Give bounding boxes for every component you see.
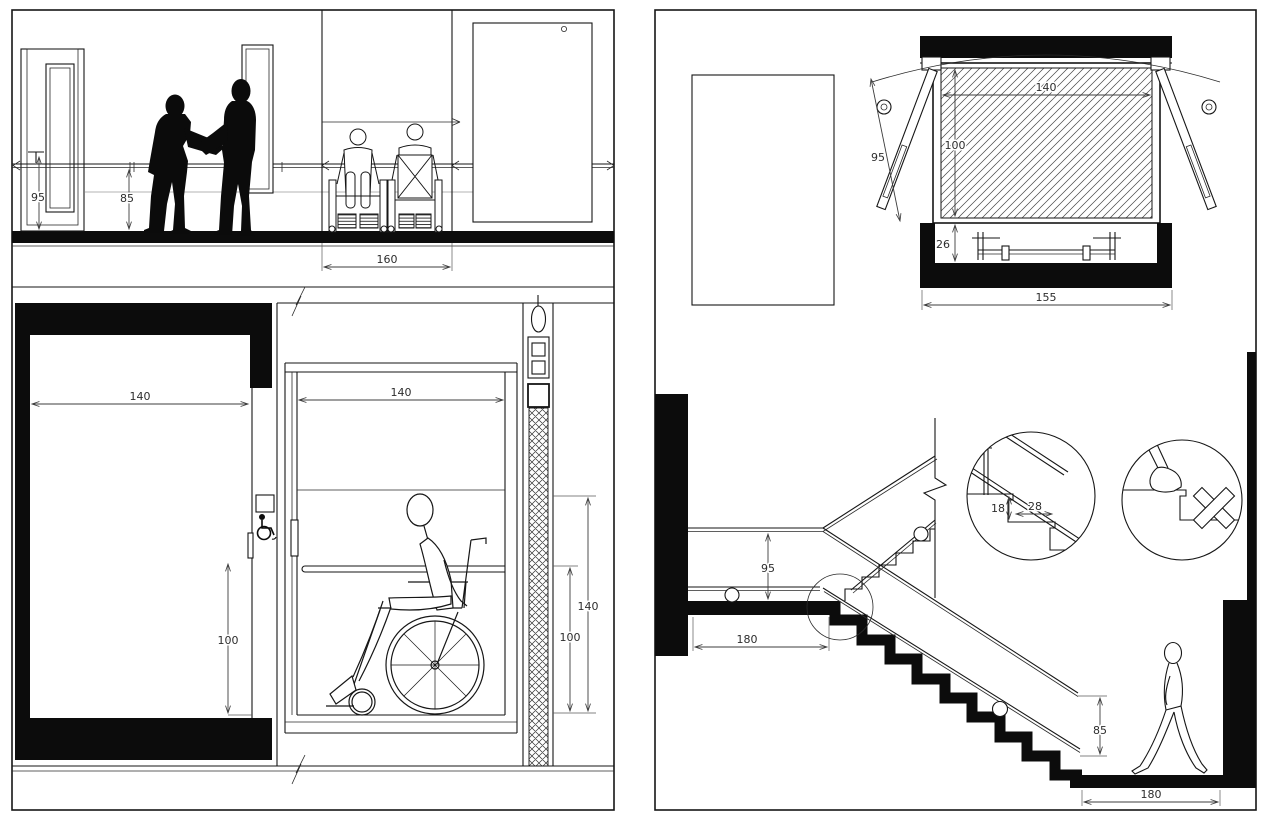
- dim-label-26: 26: [936, 238, 950, 251]
- door-pivot: [1202, 100, 1216, 114]
- dim-call-button-height: 100: [218, 564, 253, 715]
- lift-plan-sill: [920, 223, 1172, 288]
- stair-flight-steps: [835, 601, 1082, 775]
- dim-landing-handrail-height: 95: [761, 534, 775, 599]
- shoe-toe-catch: [1150, 467, 1181, 492]
- dim-label-140: 140: [130, 390, 151, 403]
- floor-slab: [12, 231, 614, 243]
- dim-label-85: 85: [1093, 724, 1107, 737]
- lift-shaft-right: [523, 295, 553, 766]
- walking-person-figure: [1132, 643, 1207, 775]
- dim-sill-clearance: 26: [936, 225, 955, 261]
- lift-plan-door-left: [877, 68, 937, 209]
- dim-label-155: 155: [1036, 291, 1057, 304]
- dim-label-100: 100: [560, 631, 581, 644]
- standing-person-left: [144, 114, 191, 235]
- shaft-insulation-hatch: [529, 408, 548, 766]
- cab-door-handle: [291, 520, 298, 556]
- door-pull: [248, 533, 253, 558]
- wrong-mark-x-icon: [1193, 487, 1234, 528]
- ball-marker: [914, 527, 928, 541]
- lift-call-button: [256, 495, 274, 512]
- upper-flight: [823, 418, 946, 601]
- dim-label-28: 28: [1028, 500, 1042, 513]
- break-symbol: [292, 287, 305, 316]
- break-symbol: [292, 755, 305, 784]
- standing-people-silhouettes: [144, 79, 256, 237]
- ball-marker: [725, 588, 739, 602]
- dim-riser-height: 18: [991, 497, 1009, 519]
- wheelchair-user-back: [388, 124, 442, 232]
- lower-landing-slab: [1070, 775, 1227, 788]
- wheelchair-user-front: [329, 129, 387, 232]
- dim-tread-depth: 28: [1016, 500, 1052, 514]
- lift-section-view: 140 100 140: [12, 287, 614, 784]
- dim-label-18: 18: [991, 502, 1005, 515]
- dim-lower-landing-length: 180: [1082, 788, 1220, 806]
- corridor-elevation-view: 95 85: [12, 10, 614, 271]
- step-detail-circle: 18 28: [961, 430, 1098, 560]
- dim-label-100: 100: [945, 139, 966, 152]
- door-pivot: [877, 100, 891, 114]
- corridor-door-panel-right: [473, 23, 592, 222]
- dim-label-160: 160: [377, 253, 398, 266]
- dim-handrail-height: 85: [120, 170, 134, 229]
- dim-label-180: 180: [737, 633, 758, 646]
- stair-section-view: 95 180 85 180 18: [655, 352, 1256, 806]
- lift-plan-view: 140 100 95 26 155: [692, 36, 1220, 310]
- dim-label-95: 95: [31, 191, 45, 204]
- upper-landing-slab: [673, 601, 836, 615]
- wrong-step-detail-circle: [1120, 440, 1242, 560]
- cab-handrail: [302, 566, 505, 572]
- dim-flight-handrail-height: 85: [1078, 696, 1107, 756]
- dim-label-140: 140: [1036, 81, 1057, 94]
- break-line: [924, 418, 946, 598]
- dim-cab-door-height: 140: [553, 496, 599, 713]
- drawing-sheet: 95 85: [0, 0, 1267, 827]
- guide-block: [528, 384, 549, 407]
- dim-cab-handrail-height: 100: [553, 566, 581, 711]
- dim-label-180: 180: [1141, 788, 1162, 801]
- dim-corridor-width: 160: [322, 243, 452, 271]
- wheelchair-accessibility-icon: [258, 515, 277, 540]
- dim-label-95: 95: [871, 151, 885, 164]
- pulley: [532, 306, 546, 332]
- wheelchair-user-side: [326, 494, 486, 715]
- dim-label-140: 140: [391, 386, 412, 399]
- ball-marker: [993, 702, 1008, 717]
- dim-shaft-width: 155: [922, 290, 1172, 310]
- landing-zone-rect: [692, 75, 834, 305]
- standing-person-right: [214, 101, 256, 237]
- right-wall: [1223, 600, 1256, 788]
- person-head: [232, 79, 251, 103]
- dim-label-95: 95: [761, 562, 775, 575]
- landing-handrails: [688, 528, 823, 602]
- accessibility-details-drawing: 95 85: [0, 0, 1267, 827]
- dim-upper-landing-length: 180: [693, 617, 829, 651]
- dim-label-100: 100: [218, 634, 239, 647]
- baluster: [975, 441, 992, 495]
- dim-label-85: 85: [120, 192, 134, 205]
- dim-landing-door-width: 140: [32, 390, 248, 404]
- dim-cab-width: 140: [299, 386, 503, 400]
- left-wall: [655, 394, 688, 656]
- lift-plan-door-right: [1156, 68, 1216, 209]
- dim-label-140: 140: [578, 600, 599, 613]
